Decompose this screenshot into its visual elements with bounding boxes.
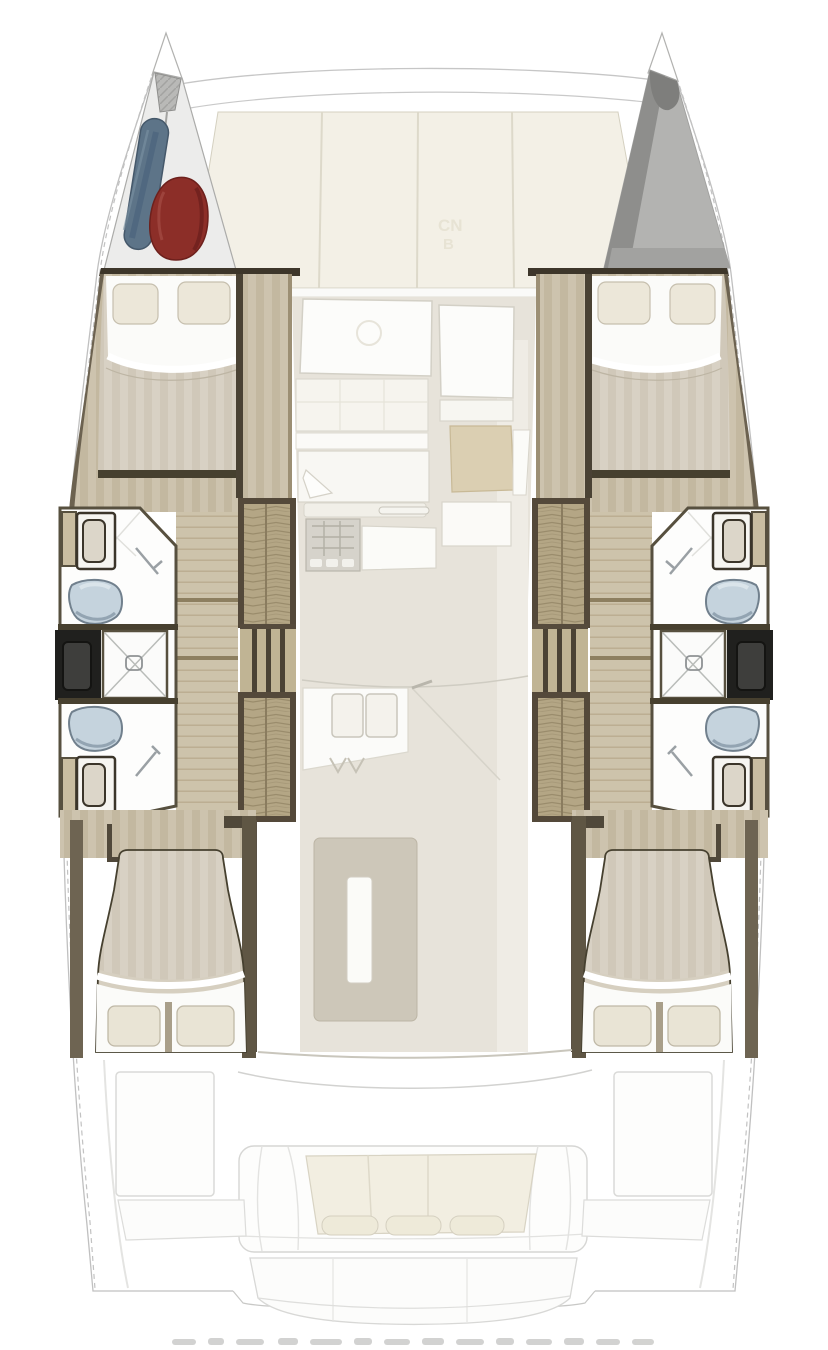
svg-text:B: B: [443, 236, 454, 253]
svg-text:CN: CN: [438, 216, 463, 235]
